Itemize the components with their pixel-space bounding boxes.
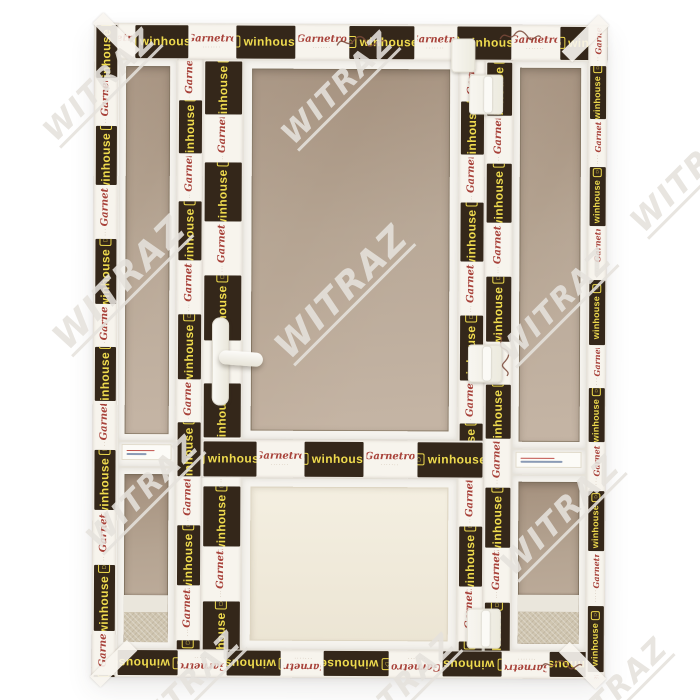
- tape-segment-garnetro: Garnetro·······: [392, 652, 440, 677]
- garnetro-brand-text: Garnetro: [465, 480, 475, 517]
- spec-sticker: [515, 452, 581, 468]
- tape-segment-garnetro: Garnetro·······: [178, 156, 201, 198]
- garnetro-brand-text: Garnetro: [592, 445, 600, 477]
- tape-segment-winhouse: ⌂winhouse: [205, 61, 242, 114]
- tape-segment-winhouse: ⌂winhouse: [460, 202, 483, 261]
- tape-segment-winhouse: ⌂winhouse: [417, 442, 482, 477]
- winhouse-logo-icon: ⌂: [465, 315, 477, 323]
- door-hinge-top: [469, 75, 503, 115]
- tape-segment-winhouse: ⌂winhouse: [176, 640, 199, 650]
- winhouse-logo-icon: ⌂: [99, 449, 111, 454]
- winhouse-logo-icon: ⌂: [465, 423, 477, 425]
- tape-segment-garnetro: Garnetro·······: [589, 122, 605, 164]
- winhouse-logo-icon: ⌂: [492, 276, 504, 284]
- door-panel-sash: [241, 478, 458, 651]
- garnetro-subtext: ·······: [102, 553, 106, 561]
- carpet-floor-through-glass: [124, 612, 168, 642]
- winhouse-logo-icon: ⌂: [493, 163, 505, 168]
- tape-strip-right-frame: Garnetro·······⌂winhouseGarnetro·······⌂…: [586, 25, 608, 679]
- tape-segment-winhouse: ⌂winhouse: [485, 384, 510, 438]
- winhouse-logo-icon: ⌂: [304, 453, 309, 465]
- garnetro-subtext: ·······: [103, 341, 107, 343]
- winhouse-brand-text: winhouse: [491, 495, 503, 547]
- garnetro-brand-text: Garnetro: [101, 80, 111, 116]
- baseboard-through-glass: [518, 595, 579, 611]
- garnetro-brand-text: Garnetro: [183, 479, 193, 516]
- product-photo: Garnetro·······⌂winhouseGarnetro·······⌂…: [0, 0, 700, 700]
- garnetro-subtext: ·······: [188, 193, 192, 198]
- winhouse-brand-text: winhouse: [99, 352, 111, 401]
- winhouse-logo-icon: ⌂: [593, 66, 602, 74]
- tape-segment-winhouse: ⌂winhouse: [486, 163, 511, 222]
- garnetro-subtext: ·······: [596, 56, 600, 63]
- tape-segment-winhouse: ⌂winhouse: [95, 238, 116, 303]
- winhouse-logo-icon: ⌂: [591, 493, 600, 502]
- winhouse-logo-icon: ⌂: [381, 658, 389, 670]
- winhouse-logo-icon: ⌂: [279, 658, 281, 670]
- garnetro-subtext: ·······: [497, 156, 501, 161]
- door-hinge-bottom: [467, 609, 501, 649]
- winhouse-logo-icon: ⌂: [184, 201, 196, 206]
- winhouse-logo-icon: ⌂: [98, 564, 110, 572]
- garnetro-brand-text: Garnetro: [593, 122, 601, 153]
- garnetro-subtext: ·······: [426, 46, 445, 50]
- tape-segment-winhouse: ⌂winhouse: [94, 346, 115, 400]
- tape-segment-winhouse: ⌂winhouse: [590, 66, 606, 119]
- tape-segment-garnetro: Garnetro·······: [202, 549, 239, 598]
- winhouse-brand-text: winhouse: [592, 296, 601, 339]
- tape-segment-garnetro: Garnetro·······: [259, 441, 301, 476]
- handwritten-mark: [540, 657, 584, 673]
- glass-reflection: [251, 69, 451, 432]
- garnetro-subtext: ·······: [526, 46, 545, 50]
- winhouse-logo-icon: ⌂: [217, 162, 229, 167]
- garnetro-subtext: ·······: [495, 479, 499, 484]
- garnetro-brand-text: Garnetro: [183, 588, 193, 628]
- winhouse-logo-icon: ⌂: [173, 657, 178, 669]
- winhouse-brand-text: winhouse: [183, 209, 195, 260]
- tape-segment-garnetro: Garnetro·······: [460, 264, 483, 312]
- handwritten-mark: [498, 28, 542, 46]
- winhouse-brand-text: winhouse: [443, 658, 494, 670]
- garnetro-brand-text: Garnetro: [216, 549, 226, 589]
- tape-segment-garnetro: Garnetro·······: [486, 225, 511, 273]
- left-sidelight-upper-sash: [118, 59, 178, 441]
- winhouse-logo-icon: ⌂: [236, 35, 241, 47]
- tape-segment-garnetro: Garnetro·······: [417, 26, 454, 59]
- carpet-floor-through-glass: [518, 611, 579, 644]
- winhouse-brand-text: winhouse: [100, 133, 112, 184]
- tape-segment-garnetro: Garnetro·······: [588, 445, 604, 488]
- garnetro-subtext: ·······: [496, 266, 500, 274]
- garnetro-subtext: ·······: [186, 629, 190, 637]
- garnetro-subtext: ·······: [219, 590, 223, 598]
- left-sidelight-lower-glass: [124, 474, 169, 642]
- tape-segment-winhouse: ⌂winhouse: [178, 100, 201, 153]
- garnetro-brand-text: Garnetro: [181, 661, 224, 671]
- winhouse-logo-icon: ⌂: [183, 422, 195, 424]
- winhouse-brand-text: winhouse: [428, 453, 482, 465]
- garnetro-subtext: ·······: [407, 657, 426, 661]
- garnetro-brand-text: Garnetro: [218, 117, 228, 154]
- tape-segment-winhouse: ⌂winhouse: [589, 280, 605, 345]
- tape-segment-winhouse: ⌂winhouse: [589, 167, 605, 226]
- garnetro-brand-text: Garnetro: [185, 61, 195, 94]
- winhouse-logo-icon: ⌂: [99, 346, 111, 348]
- garnetro-brand-text: Garnetro: [494, 118, 504, 154]
- winhouse-logo-icon: ⌂: [593, 168, 602, 177]
- garnetro-subtext: ·······: [594, 477, 598, 487]
- sticker-blue-line: [127, 453, 147, 455]
- tape-segment-winhouse: ⌂winhouse: [324, 651, 389, 676]
- tape-segment-winhouse: ⌂winhouse: [135, 25, 188, 58]
- winhouse-logo-icon: ⌂: [464, 526, 476, 531]
- winhouse-logo-icon: ⌂: [100, 125, 112, 130]
- garnetro-brand-text: Garnetro: [184, 382, 194, 416]
- garnetro-brand-text: Garnetro: [466, 264, 476, 303]
- garnetro-brand-text: Garnetro: [366, 452, 414, 462]
- winhouse-logo-icon: ⌂: [417, 453, 425, 465]
- tape-segment-winhouse: ⌂winhouse: [178, 201, 201, 260]
- tape-segment-garnetro: Garnetro·······: [459, 480, 482, 523]
- winhouse-logo-icon: ⌂: [217, 61, 229, 63]
- garnetro-subtext: ·······: [188, 95, 192, 97]
- winhouse-logo-icon: ⌂: [497, 659, 502, 671]
- garnetro-subtext: ·······: [271, 462, 290, 466]
- winhouse-brand-text: winhouse: [324, 658, 378, 670]
- garnetro-brand-text: Garnetro: [184, 263, 194, 302]
- glass-reflection: [125, 66, 171, 434]
- garnetro-subtext: ·······: [312, 45, 331, 49]
- tape-segment-garnetro: Garnetro·······: [177, 479, 200, 522]
- winhouse-logo-icon: ⌂: [216, 275, 228, 283]
- tape-segment-winhouse: ⌂winhouse: [588, 388, 604, 442]
- garnetro-subtext: ·······: [219, 478, 223, 483]
- spec-sticker: [122, 444, 172, 460]
- sticker-blue-line: [521, 461, 563, 463]
- garnetro-brand-text: Garnetro: [284, 661, 321, 671]
- garnetro-subtext: ·······: [381, 463, 400, 467]
- door-glass-sash: [242, 60, 460, 441]
- tape-segment-winhouse: ⌂winhouse: [588, 491, 604, 551]
- garnetro-brand-text: Garnetro: [392, 662, 440, 672]
- tape-segment-garnetro: Garnetro·······: [95, 80, 116, 122]
- garnetro-subtext: ·······: [468, 518, 472, 523]
- garnetro-subtext: ·······: [495, 591, 499, 599]
- right-sidelight-upper-glass: [519, 68, 582, 442]
- tape-strip-left-frame: ⌂winhouseGarnetro·······⌂winhouseGarnetr…: [92, 23, 119, 677]
- garnetro-brand-text: Garnetro: [100, 403, 110, 440]
- right-sidelight-lower-sash: [511, 475, 587, 651]
- tape-segment-winhouse: ⌂winhouse: [485, 487, 510, 547]
- tape-segment-garnetro: Garnetro·······: [179, 61, 202, 97]
- sticker-red-line: [127, 450, 155, 452]
- winhouse-brand-text: winhouse: [244, 36, 295, 48]
- winhouse-logo-icon: ⌂: [184, 100, 196, 102]
- winhouse-logo-icon: ⌂: [592, 284, 601, 293]
- tape-segment-winhouse: ⌂winhouse: [227, 651, 281, 676]
- winhouse-brand-text: winhouse: [215, 612, 227, 649]
- garnetro-subtext: ·······: [517, 657, 536, 661]
- winhouse-logo-icon: ⌂: [99, 238, 111, 246]
- garnetro-subtext: ·······: [594, 377, 598, 384]
- winhouse-brand-text: winhouse: [227, 657, 276, 669]
- garnetro-brand-text: Garnetro: [466, 383, 476, 417]
- winhouse-brand-text: winhouse: [184, 105, 196, 153]
- garnetro-brand-text: Garnetro: [592, 348, 600, 377]
- tape-segment-garnetro: Garnetro·······: [588, 348, 604, 385]
- winhouse-logo-icon: ⌂: [215, 601, 227, 609]
- winhouse-brand-text: winhouse: [98, 458, 110, 510]
- tape-segment-garnetro: Garnetro·······: [94, 403, 115, 446]
- handwritten-mark: [334, 32, 388, 54]
- winhouse-brand-text: winhouse: [492, 389, 504, 438]
- tape-segment-winhouse: ⌂winhouse: [203, 441, 256, 476]
- tape-segment-winhouse: ⌂winhouse: [236, 25, 295, 58]
- tape-segment-garnetro: Garnetro·······: [484, 550, 509, 599]
- tape-segment-garnetro: Garnetro·······: [485, 441, 510, 484]
- winhouse-brand-text: winhouse: [493, 171, 505, 222]
- garnetro-brand-text: Garnetro: [493, 225, 503, 264]
- tape-segment-garnetro: Garnetro·······: [191, 25, 233, 58]
- tape-segment-garnetro: Garnetro·······: [460, 157, 483, 199]
- tape-segment-garnetro: Garnetro·······: [178, 263, 201, 311]
- winhouse-logo-icon: ⌂: [215, 486, 227, 491]
- garnetro-subtext: ·······: [220, 264, 224, 272]
- garnetro-brand-text: Garnetro: [185, 156, 195, 192]
- tape-segment-winhouse: ⌂winhouse: [458, 526, 481, 586]
- left-sidelight-upper-glass: [125, 66, 171, 434]
- winhouse-brand-text: winhouse: [591, 623, 600, 666]
- garnetro-subtext: ·······: [470, 194, 474, 199]
- garnetro-brand-text: Garnetro: [593, 229, 601, 263]
- tape-strip-door-mid-rail: ⌂winhouseGarnetro·······⌂winhouseGarnetr…: [201, 439, 483, 478]
- door-unit: Garnetro·······⌂winhouseGarnetro·······⌂…: [92, 23, 608, 679]
- winhouse-brand-text: winhouse: [591, 505, 600, 548]
- left-sidelight-lower-sash: [117, 467, 176, 649]
- garnetro-subtext: ·······: [293, 656, 312, 660]
- winhouse-logo-icon: ⌂: [183, 314, 195, 322]
- garnetro-brand-text: Garnetro: [492, 441, 502, 478]
- winhouse-brand-text: winhouse: [98, 576, 110, 631]
- winhouse-logo-icon: ⌂: [466, 202, 478, 207]
- garnetro-subtext: ·······: [202, 45, 221, 49]
- tape-segment-garnetro: Garnetro·······: [95, 187, 116, 235]
- winhouse-brand-text: winhouse: [312, 453, 363, 465]
- garnetro-subtext: ·······: [103, 228, 107, 236]
- tape-segment-garnetro: Garnetro·······: [177, 382, 200, 419]
- winhouse-brand-text: winhouse: [182, 427, 194, 476]
- garnetro-brand-text: Garnetro: [417, 35, 454, 45]
- winhouse-brand-text: winhouse: [465, 210, 477, 261]
- tape-segment-winhouse: ⌂winhouse: [177, 422, 200, 476]
- tape-segment-garnetro: Garnetro·······: [284, 651, 321, 676]
- winhouse-brand-text: winhouse: [183, 325, 195, 379]
- right-sidelight-upper-sash: [512, 61, 589, 449]
- tape-segment-garnetro: Garnetro·······: [176, 588, 199, 637]
- garnetro-subtext: ·······: [104, 118, 108, 123]
- tape-segment-winhouse: ⌂winhouse: [203, 486, 240, 546]
- winhouse-logo-icon: ⌂: [492, 384, 504, 386]
- winhouse-brand-text: winhouse: [464, 534, 476, 586]
- garnetro-subtext: ·······: [193, 656, 212, 660]
- garnetro-brand-text: Garnetro: [492, 550, 502, 590]
- winhouse-brand-text: winhouse: [217, 66, 229, 114]
- baseboard-through-glass: [124, 595, 168, 612]
- garnetro-brand-text: Garnetro: [591, 554, 599, 589]
- garnetro-brand-text: Garnetro: [191, 34, 233, 44]
- tape-segment-garnetro: Garnetro·······: [459, 383, 482, 420]
- tape-segment-garnetro: Garnetro·······: [181, 651, 224, 676]
- tape-segment-winhouse: ⌂winhouse: [93, 564, 114, 630]
- tape-segment-winhouse: ⌂winhouse: [202, 601, 239, 650]
- garnetro-brand-text: Garnetro: [467, 157, 477, 193]
- garnetro-brand-text: Garnetro: [99, 512, 109, 552]
- tape-segment-winhouse: ⌂winhouse: [95, 125, 116, 184]
- watermark-text: WITRAZ: [622, 104, 700, 240]
- tape-segment-garnetro: Garnetro·······: [204, 224, 241, 272]
- winhouse-logo-icon: ⌂: [491, 487, 503, 492]
- tape-segment-winhouse: ⌂winhouse: [176, 525, 199, 585]
- winhouse-logo-icon: ⌂: [592, 388, 601, 397]
- winhouse-brand-text: winhouse: [182, 533, 194, 585]
- garnetro-subtext: ·······: [187, 417, 191, 419]
- top-hinge-bracket: [451, 38, 475, 72]
- garnetro-subtext: ·······: [595, 264, 599, 277]
- tape-strip-left-mullion: Garnetro·······⌂winhouseGarnetro·······⌂…: [175, 59, 204, 649]
- winhouse-logo-icon: ⌂: [203, 452, 205, 464]
- garnetro-brand-text: Garnetro: [217, 224, 227, 264]
- right-sidelight-lower-glass: [518, 482, 580, 644]
- winhouse-brand-text: winhouse: [99, 249, 111, 303]
- winhouse-brand-text: winhouse: [592, 399, 601, 442]
- tape-segment-garnetro: Garnetro·······: [95, 306, 116, 343]
- garnetro-brand-text: Garnetro: [100, 306, 110, 340]
- tape-segment-winhouse: ⌂winhouse: [94, 449, 115, 509]
- garnetro-subtext: ·······: [593, 589, 597, 602]
- winhouse-brand-text: winhouse: [140, 35, 188, 47]
- garnetro-subtext: ·······: [103, 441, 107, 446]
- winhouse-brand-text: winhouse: [208, 452, 256, 464]
- tape-segment-garnetro: Garnetro·······: [366, 442, 414, 477]
- winhouse-logo-icon: ⌂: [591, 611, 600, 620]
- door-bottom-panel: [250, 487, 449, 642]
- winhouse-brand-text: winhouse: [215, 494, 227, 546]
- garnetro-subtext: ·······: [595, 154, 599, 164]
- door-glass: [251, 69, 451, 432]
- tape-segment-garnetro: Garnetro·······: [94, 512, 115, 561]
- tape-segment-garnetro: Garnetro·······: [486, 118, 511, 160]
- garnetro-subtext: ·······: [187, 303, 191, 311]
- sticker-red-line: [521, 457, 555, 459]
- winhouse-logo-icon: ⌂: [493, 62, 505, 64]
- garnetro-subtext: ·······: [469, 304, 473, 312]
- garnetro-subtext: ·······: [221, 154, 225, 159]
- winhouse-logo-icon: ⌂: [182, 525, 194, 530]
- winhouse-logo-icon: ⌂: [182, 640, 194, 648]
- tape-segment-garnetro: Garnetro·······: [587, 554, 603, 603]
- garnetro-brand-text: Garnetro: [259, 451, 301, 461]
- tape-segment-garnetro: Garnetro·······: [204, 117, 241, 159]
- tape-strip-bottom: ⌂winhouseGarnetro·······⌂winhouseGarnetr…: [92, 649, 605, 679]
- tape-segment-winhouse: ⌂winhouse: [443, 652, 502, 677]
- garnetro-subtext: ·······: [186, 517, 190, 522]
- tape-segment-winhouse: ⌂winhouse: [304, 441, 363, 476]
- glass-reflection: [519, 68, 582, 442]
- winhouse-brand-text: winhouse: [593, 77, 602, 119]
- tape-segment-winhouse: ⌂winhouse: [177, 314, 200, 379]
- tape-segment-winhouse: ⌂winhouse: [204, 162, 241, 221]
- tape-segment-garnetro: Garnetro·······: [589, 229, 605, 277]
- winhouse-brand-text: winhouse: [593, 180, 602, 223]
- garnetro-brand-text: Garnetro: [101, 187, 111, 226]
- winhouse-brand-text: winhouse: [217, 170, 229, 221]
- garnetro-subtext: ·······: [469, 418, 473, 420]
